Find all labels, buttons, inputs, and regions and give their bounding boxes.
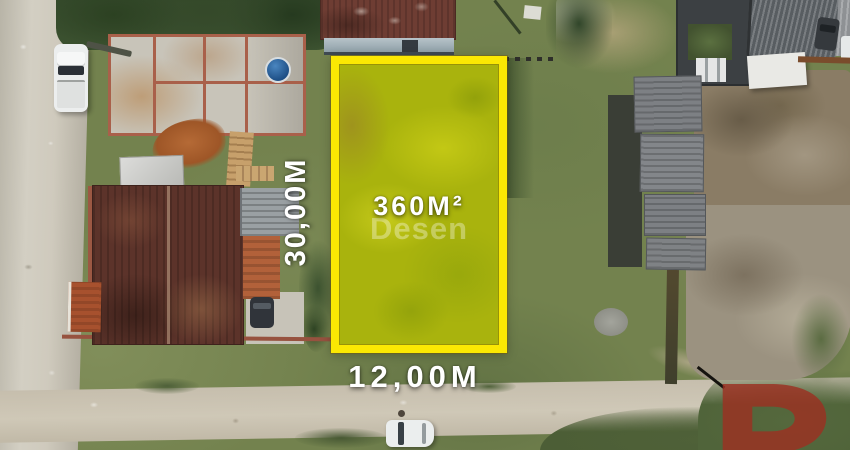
dirt-field — [694, 70, 850, 212]
truck-windshield — [58, 66, 84, 75]
roof-ridge — [167, 186, 170, 344]
house-dark-roof — [92, 185, 244, 345]
brick-wall — [245, 37, 248, 133]
lot-width-dimension-label: 12,00M — [322, 361, 508, 392]
lot-area-label: 360M² — [331, 193, 507, 220]
warehouse-courtyard — [688, 24, 732, 60]
desen-logo-d-icon — [714, 381, 834, 450]
townhouse-roof — [646, 237, 707, 270]
orange-roof-shed — [68, 282, 102, 333]
dark-fence — [665, 266, 679, 384]
tree-shadow — [506, 58, 534, 198]
parked-dark-car — [250, 297, 274, 328]
lot-height-dimension-label: 30,00M — [282, 132, 322, 292]
concrete-slab — [523, 5, 541, 20]
car-rear-window — [422, 423, 426, 444]
road-edge-bush — [295, 428, 387, 448]
grass-patch — [790, 290, 850, 388]
house-top-wall — [324, 38, 454, 55]
townhouse-roof — [640, 134, 705, 193]
townhouse-roof — [644, 194, 706, 236]
white-truck — [54, 44, 88, 112]
brick-wall — [153, 37, 156, 133]
truck-bed — [57, 80, 85, 108]
water-tank — [265, 57, 291, 83]
car-windshield — [398, 422, 404, 445]
person — [398, 410, 405, 417]
lumber-stack — [236, 166, 274, 181]
road-edge-bush — [135, 378, 199, 394]
ash-patch — [594, 308, 628, 336]
truck-cab-roof — [57, 52, 85, 65]
car-top-right — [814, 17, 840, 52]
aerial-photo: 360M² Desen 30,00M 12,00M — [0, 0, 850, 450]
house-top-roof — [320, 0, 456, 40]
white-car-corner — [841, 36, 850, 60]
townhouse-roof — [634, 75, 703, 132]
trees-right-of-lot — [546, 0, 612, 74]
orange-roof-section — [243, 236, 280, 299]
fence-posts — [504, 57, 558, 61]
house-top-door — [402, 40, 418, 52]
white-car — [386, 420, 434, 447]
